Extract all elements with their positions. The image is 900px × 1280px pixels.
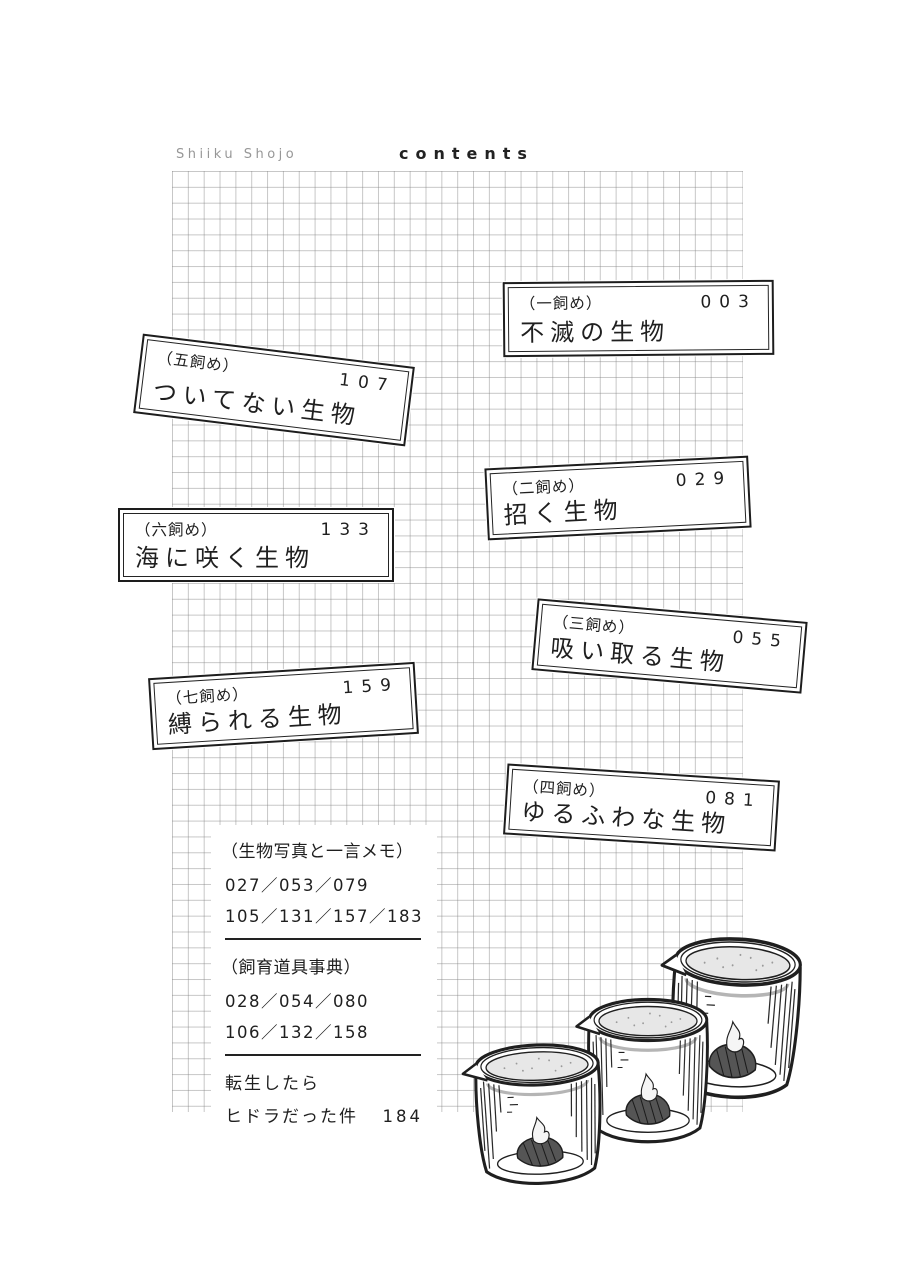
- chapter-label: （一飼め）: [520, 291, 603, 314]
- photo-memo-pages-2: 105／131／157／183: [225, 903, 423, 927]
- chapter-title: 不滅の生物: [520, 319, 757, 346]
- chapter-page-number: 029: [675, 468, 732, 491]
- tools-heading: （飼育道具事典）: [221, 953, 423, 978]
- photo-memo-pages-1: 027／053／079: [225, 872, 423, 896]
- bonus-title-line2: ヒドラだった件: [225, 1102, 358, 1127]
- chapter-page-number: 003: [700, 292, 757, 312]
- chapter-page-number: 133: [321, 520, 377, 540]
- chapter-title: 海に咲く生物: [135, 546, 377, 571]
- three-beakers-illustration: [430, 890, 840, 1220]
- chapter-page-number: 081: [705, 788, 763, 812]
- tools-pages-2: 106／132／158: [225, 1019, 423, 1043]
- beaker-left: [462, 1043, 603, 1186]
- tools-pages-1: 028／054／080: [225, 988, 423, 1012]
- page-title: contents: [399, 144, 534, 163]
- chapter-card-2: （二飼め） 029 招く生物: [484, 456, 751, 541]
- photo-memo-heading: （生物写真と一言メモ）: [221, 837, 423, 862]
- chapter-page-number: 055: [732, 627, 790, 652]
- series-title: Shiiku Shojo: [176, 147, 297, 162]
- bonus-title-line1: 転生したら: [225, 1069, 423, 1094]
- chapter-card-1-inner: （一飼め） 003 不滅の生物: [508, 285, 770, 352]
- chapter-label: （六飼め）: [135, 518, 218, 540]
- contents-page: Shiiku Shojo contents （一飼め） 003 不滅の生物 （五…: [0, 0, 900, 1280]
- divider: [225, 1054, 421, 1056]
- chapter-card-2-inner: （二飼め） 029 招く生物: [490, 461, 747, 535]
- chapter-card-6: （六飼め） 133 海に咲く生物: [118, 508, 394, 582]
- chapter-label: （二飼め）: [502, 474, 585, 500]
- chapter-label: （五飼め）: [156, 346, 241, 378]
- chapter-label: （七飼め）: [166, 682, 250, 709]
- divider: [225, 938, 421, 940]
- chapter-page-number: 107: [338, 370, 396, 397]
- chapter-card-7-inner: （七飼め） 159 縛られる生物: [153, 667, 413, 745]
- bonus-page-number: 184: [383, 1107, 424, 1126]
- index-panel: （生物写真と一言メモ） 027／053／079 105／131／157／183 …: [211, 825, 437, 1141]
- chapter-card-4-inner: （四飼め） 081 ゆるふわな生物: [508, 769, 774, 846]
- chapter-card-1: （一飼め） 003 不滅の生物: [503, 280, 775, 357]
- chapter-page-number: 159: [342, 675, 400, 698]
- chapter-card-6-inner: （六飼め） 133 海に咲く生物: [123, 513, 389, 577]
